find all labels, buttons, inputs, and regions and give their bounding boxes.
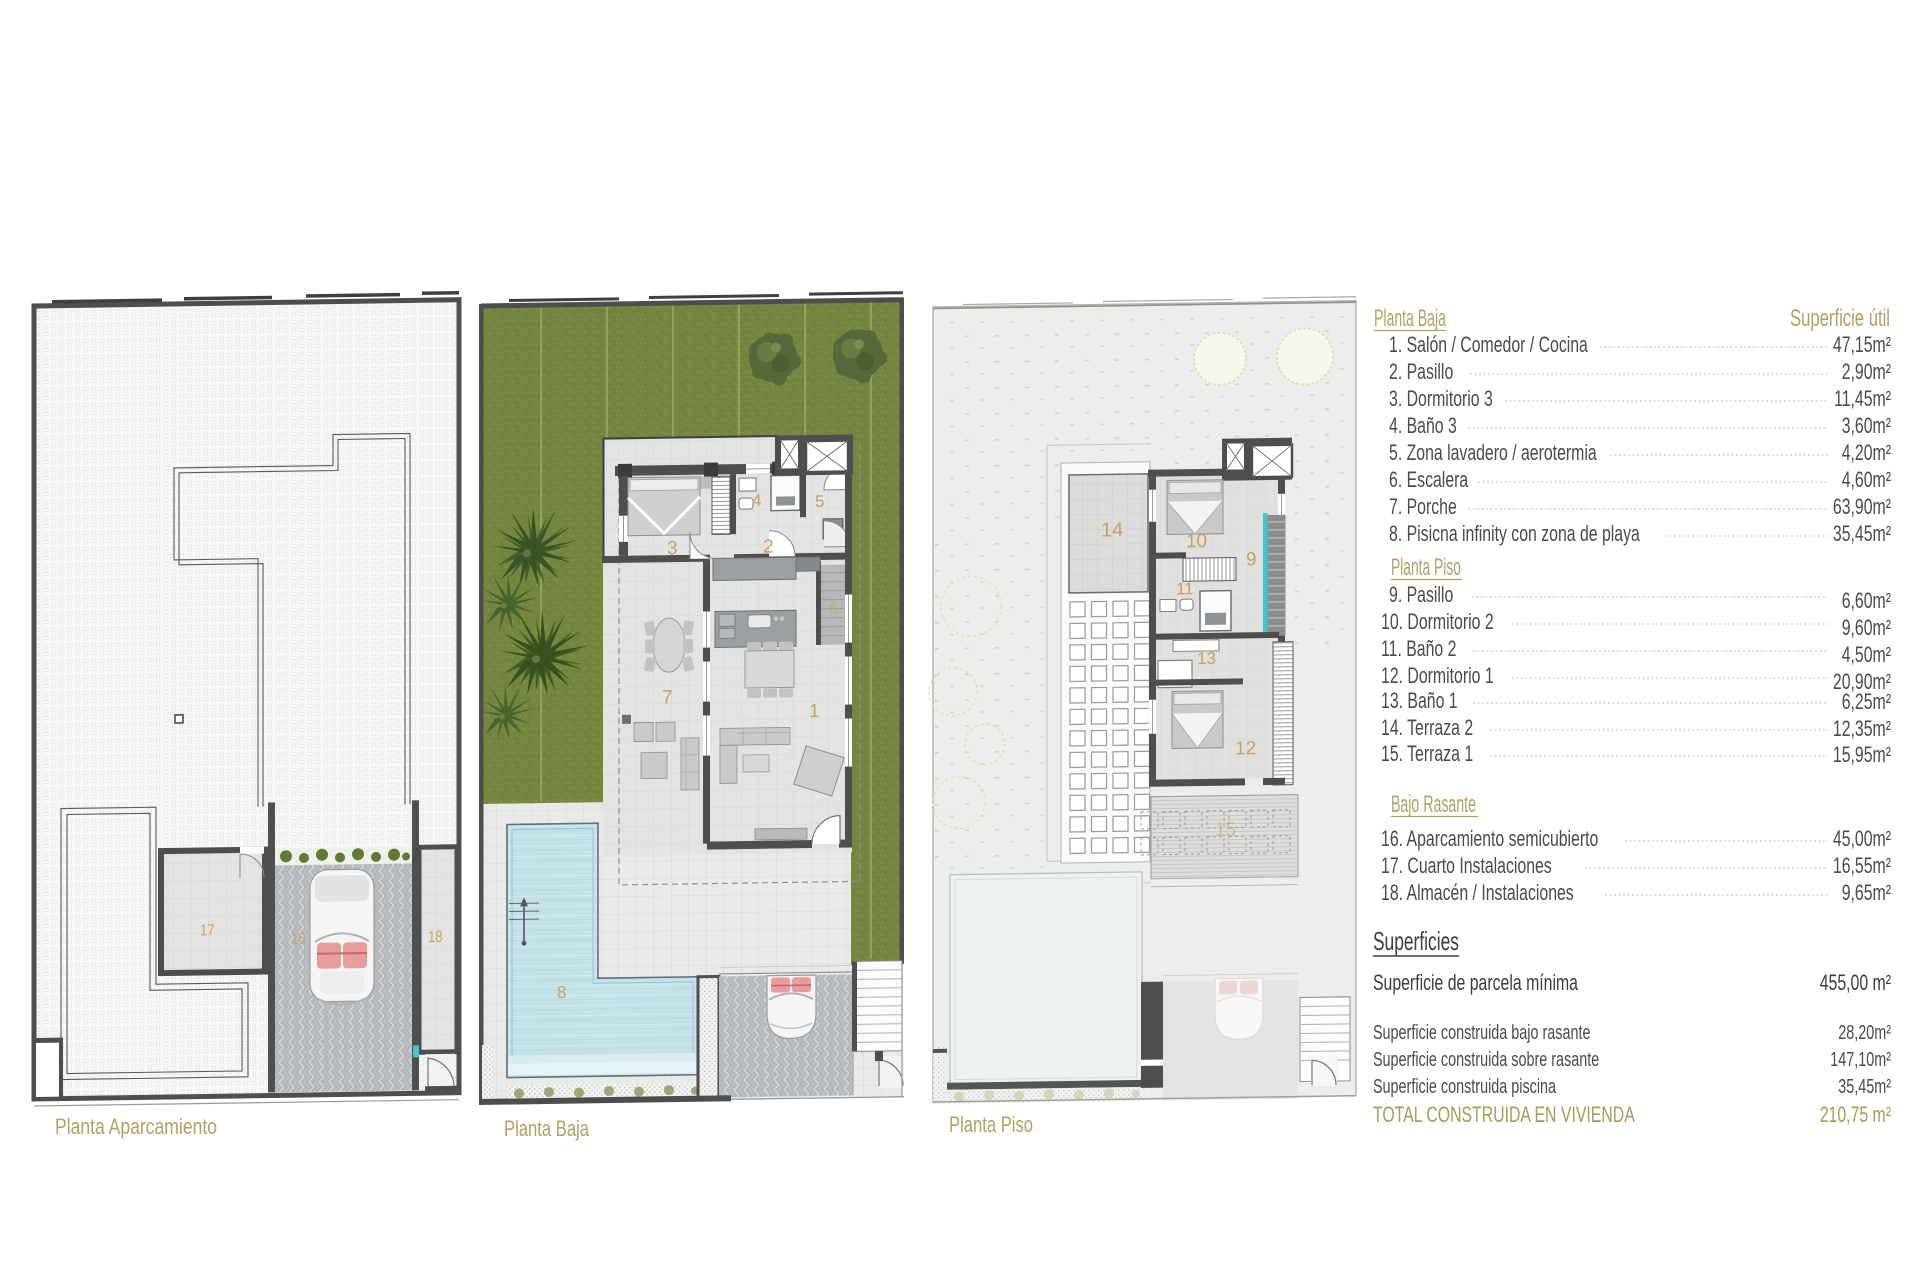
svg-text:Superficie construida sobre ra: Superficie construida sobre rasante	[1373, 1048, 1599, 1071]
svg-text:18: 18	[428, 929, 443, 947]
svg-text:18. Almacén / Instalaciones: 18. Almacén / Instalaciones	[1381, 882, 1574, 906]
svg-text:9,65m²: 9,65m²	[1842, 882, 1892, 906]
svg-text:8. Pisicna infinity con zona d: 8. Pisicna infinity con zona de playa	[1389, 523, 1640, 547]
svg-text:147,10m²: 147,10m²	[1830, 1048, 1891, 1071]
svg-text:3,60m²: 3,60m²	[1842, 415, 1892, 439]
svg-text:6. Escalera: 6. Escalera	[1389, 469, 1468, 493]
svg-text:4,50m²: 4,50m²	[1842, 644, 1892, 668]
svg-text:17: 17	[200, 922, 215, 940]
svg-text:1: 1	[809, 701, 820, 722]
svg-text:45,00m²: 45,00m²	[1833, 828, 1892, 852]
svg-text:5: 5	[815, 492, 824, 511]
svg-text:12. Dormitorio 1: 12. Dormitorio 1	[1381, 665, 1494, 689]
svg-text:14: 14	[1101, 519, 1123, 541]
svg-text:Planta Piso: Planta Piso	[949, 1112, 1033, 1137]
svg-text:455,00 m²: 455,00 m²	[1820, 972, 1892, 996]
svg-text:15,95m²: 15,95m²	[1833, 744, 1892, 768]
svg-text:Planta Piso: Planta Piso	[1391, 554, 1461, 580]
svg-text:35,45m²: 35,45m²	[1838, 1075, 1891, 1098]
svg-text:8: 8	[557, 983, 566, 1002]
svg-text:Planta Aparcamiento: Planta Aparcamiento	[55, 1114, 217, 1139]
svg-text:12: 12	[1235, 738, 1256, 759]
svg-text:Planta Baja: Planta Baja	[1374, 305, 1446, 331]
svg-text:63,90m²: 63,90m²	[1833, 496, 1892, 520]
svg-text:4,20m²: 4,20m²	[1842, 442, 1892, 466]
svg-text:7: 7	[662, 687, 673, 708]
svg-text:3. Dormitorio 3: 3. Dormitorio 3	[1389, 388, 1493, 412]
svg-text:13: 13	[1197, 649, 1216, 668]
svg-text:15. Terraza 1: 15. Terraza 1	[1381, 743, 1473, 767]
svg-text:10. Dormitorio 2: 10. Dormitorio 2	[1381, 611, 1494, 635]
svg-text:9. Pasillo: 9. Pasillo	[1389, 584, 1453, 608]
svg-text:210,75 m²: 210,75 m²	[1820, 1104, 1892, 1128]
svg-text:2,90m²: 2,90m²	[1842, 361, 1892, 385]
svg-text:6,60m²: 6,60m²	[1842, 590, 1892, 614]
svg-text:16,55m²: 16,55m²	[1833, 855, 1892, 879]
svg-text:9,60m²: 9,60m²	[1842, 617, 1892, 641]
svg-text:15: 15	[1215, 820, 1236, 841]
svg-text:Superficie construida piscina: Superficie construida piscina	[1373, 1075, 1556, 1098]
svg-text:13. Baño 1: 13. Baño 1	[1381, 690, 1458, 714]
svg-text:6,25m²: 6,25m²	[1842, 691, 1892, 715]
svg-text:14. Terraza 2: 14. Terraza 2	[1381, 717, 1473, 741]
svg-text:10: 10	[1186, 531, 1207, 552]
svg-text:47,15m²: 47,15m²	[1833, 334, 1892, 358]
svg-text:Planta Baja: Planta Baja	[504, 1116, 590, 1141]
svg-text:Bajo Rasante: Bajo Rasante	[1391, 791, 1476, 817]
svg-text:9: 9	[1246, 549, 1257, 570]
svg-text:3: 3	[667, 538, 678, 559]
svg-text:4: 4	[752, 491, 761, 510]
svg-text:6: 6	[829, 599, 838, 618]
svg-text:2. Pasillo: 2. Pasillo	[1389, 361, 1453, 385]
svg-text:Superficies: Superficies	[1373, 926, 1459, 956]
svg-text:11,45m²: 11,45m²	[1834, 388, 1891, 412]
svg-text:35,45m²: 35,45m²	[1833, 523, 1892, 547]
svg-text:11: 11	[1176, 579, 1194, 598]
svg-text:16. Aparcamiento semicubierto: 16. Aparcamiento semicubierto	[1381, 828, 1598, 852]
svg-text:11. Baño 2: 11. Baño 2	[1381, 638, 1456, 662]
svg-text:Superficie construida bajo ras: Superficie construida bajo rasante	[1373, 1021, 1590, 1044]
svg-text:16: 16	[291, 931, 306, 949]
svg-text:4. Baño 3: 4. Baño 3	[1389, 415, 1457, 439]
svg-text:TOTAL CONSTRUIDA EN VIVIENDA: TOTAL CONSTRUIDA EN VIVIENDA	[1373, 1104, 1635, 1128]
svg-text:5. Zona lavadero / aerotermia: 5. Zona lavadero / aerotermia	[1389, 442, 1597, 466]
svg-text:1. Salón / Comedor / Cocina: 1. Salón / Comedor / Cocina	[1389, 334, 1588, 358]
svg-text:4,60m²: 4,60m²	[1842, 469, 1892, 493]
svg-text:Superficie de parcela mínima: Superficie de parcela mínima	[1373, 972, 1578, 996]
svg-text:17. Cuarto Instalaciones: 17. Cuarto Instalaciones	[1381, 855, 1552, 879]
svg-text:7. Porche: 7. Porche	[1389, 496, 1457, 520]
svg-text:Superficie útil: Superficie útil	[1790, 305, 1890, 331]
svg-text:2: 2	[763, 537, 774, 558]
svg-text:12,35m²: 12,35m²	[1833, 718, 1892, 742]
svg-text:28,20m²: 28,20m²	[1838, 1021, 1891, 1044]
